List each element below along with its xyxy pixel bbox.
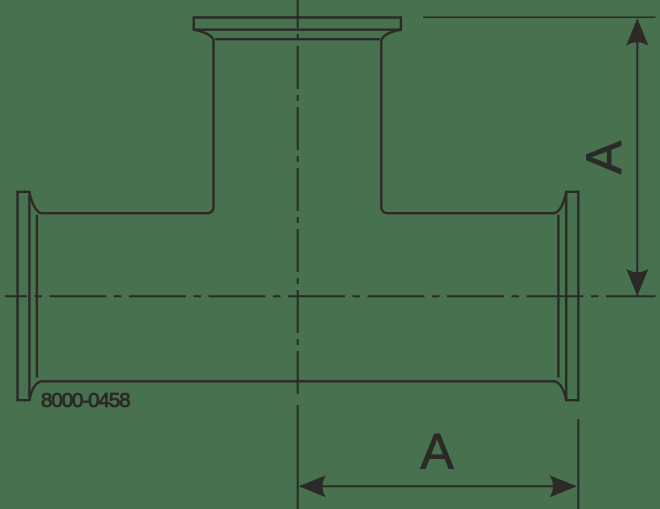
svg-text:A: A	[420, 423, 454, 479]
svg-text:8000-0458: 8000-0458	[41, 389, 130, 412]
svg-text:A: A	[576, 140, 632, 174]
